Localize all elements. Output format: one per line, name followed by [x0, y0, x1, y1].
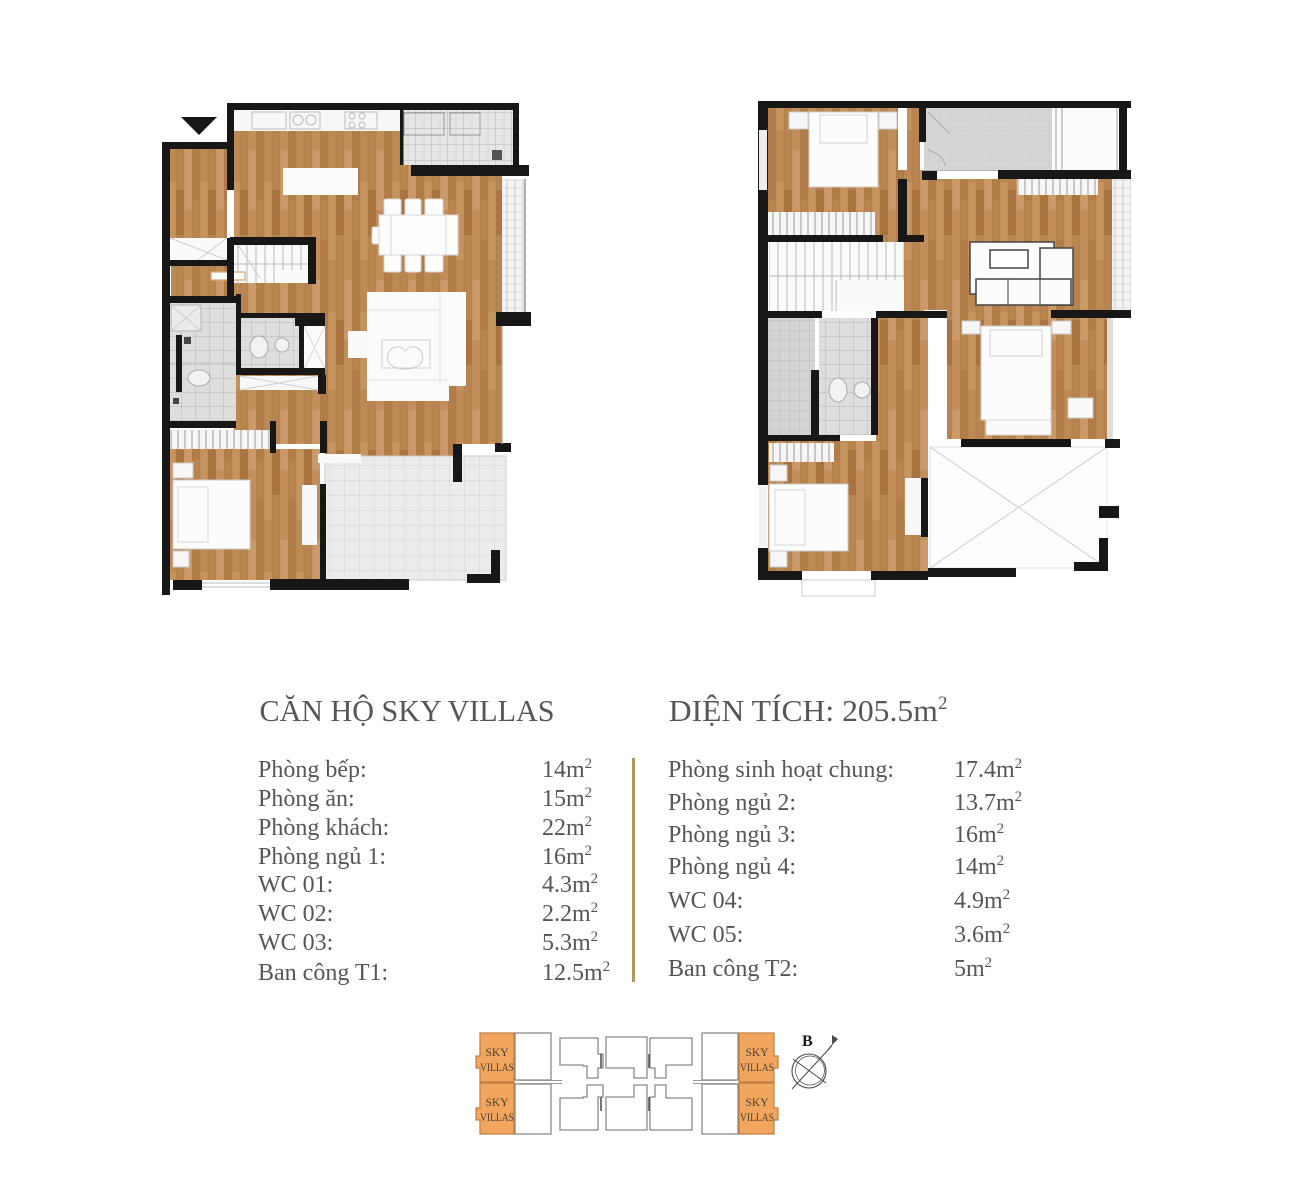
- svg-text:SKY: SKY: [746, 1097, 770, 1109]
- svg-text:VILLAS: VILLAS: [740, 1112, 774, 1124]
- svg-text:B: B: [802, 1033, 813, 1050]
- svg-text:Ban công T2:: Ban công T2:: [668, 956, 798, 982]
- svg-text:SKY: SKY: [486, 1097, 510, 1109]
- svg-text:5.3m2: 5.3m2: [542, 929, 598, 956]
- svg-text:Phòng khách:: Phòng khách:: [258, 815, 389, 841]
- svg-text:Phòng ngủ 2:: Phòng ngủ 2:: [668, 790, 796, 816]
- svg-text:Phòng sinh hoạt chung:: Phòng sinh hoạt chung:: [668, 757, 894, 783]
- svg-text:Phòng bếp:: Phòng bếp:: [258, 757, 367, 783]
- svg-text:22m2: 22m2: [542, 814, 592, 841]
- svg-text:14m2: 14m2: [954, 853, 1004, 880]
- svg-text:17.4m2: 17.4m2: [954, 756, 1022, 783]
- svg-text:SKY: SKY: [746, 1047, 770, 1059]
- svg-text:WC 01:: WC 01:: [258, 872, 333, 898]
- svg-text:2.2m2: 2.2m2: [542, 900, 598, 927]
- svg-text:4.9m2: 4.9m2: [954, 887, 1010, 914]
- svg-text:15m2: 15m2: [542, 785, 592, 812]
- svg-text:16m2: 16m2: [954, 821, 1004, 848]
- svg-text:WC 04:: WC 04:: [668, 888, 743, 914]
- svg-text:SKY: SKY: [486, 1047, 510, 1059]
- svg-text:14m2: 14m2: [542, 756, 592, 783]
- svg-text:VILLAS: VILLAS: [740, 1062, 774, 1074]
- svg-text:WC 02:: WC 02:: [258, 901, 333, 927]
- svg-text:4.3m2: 4.3m2: [542, 871, 598, 898]
- svg-text:Phòng ngủ 4:: Phòng ngủ 4:: [668, 854, 796, 880]
- svg-text:WC 03:: WC 03:: [258, 930, 333, 956]
- svg-text:13.7m2: 13.7m2: [954, 789, 1022, 816]
- svg-text:DIỆN TÍCH: 205.5m: DIỆN TÍCH: 205.5m: [669, 693, 938, 728]
- svg-text:VILLAS: VILLAS: [480, 1112, 514, 1124]
- svg-text:Phòng ăn:: Phòng ăn:: [258, 786, 355, 812]
- svg-text:3.6m2: 3.6m2: [954, 921, 1010, 948]
- svg-text:16m2: 16m2: [542, 843, 592, 870]
- svg-text:Phòng ngủ 1:: Phòng ngủ 1:: [258, 844, 386, 870]
- svg-text:Ban công T1:: Ban công T1:: [258, 960, 388, 986]
- svg-text:Phòng ngủ 3:: Phòng ngủ 3:: [668, 822, 796, 848]
- svg-text:CĂN HỘ SKY VILLAS: CĂN HỘ SKY VILLAS: [260, 693, 555, 728]
- svg-text:12.5m2: 12.5m2: [542, 959, 610, 986]
- svg-text:WC 05:: WC 05:: [668, 922, 743, 948]
- svg-text:2: 2: [938, 693, 948, 714]
- svg-text:VILLAS: VILLAS: [480, 1062, 514, 1074]
